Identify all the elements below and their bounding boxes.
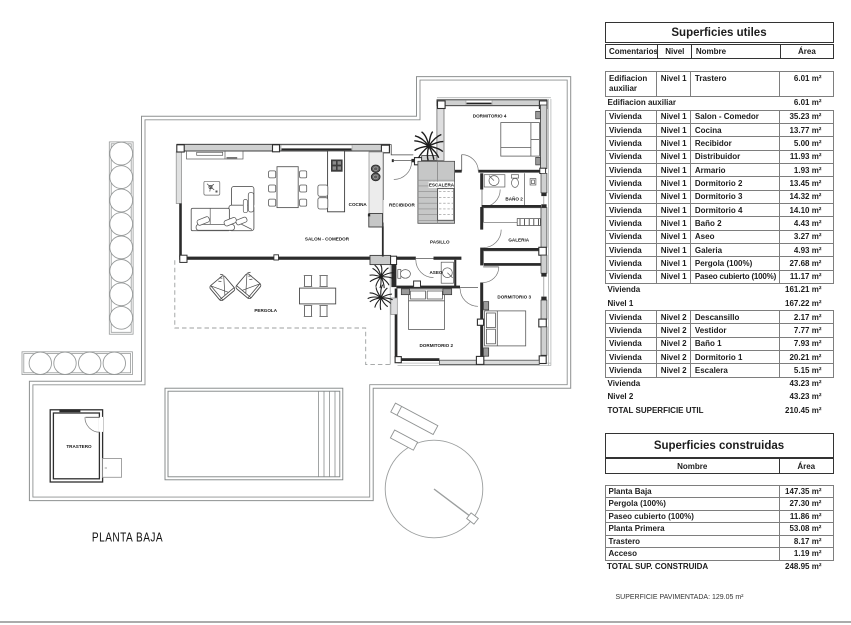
svg-text:SALON - COMEDOR: SALON - COMEDOR xyxy=(305,237,350,242)
svg-text:GALERIA: GALERIA xyxy=(508,237,529,242)
svg-text:BAÑO 2: BAÑO 2 xyxy=(505,195,523,201)
svg-text:PLANTA BAJA: PLANTA BAJA xyxy=(92,531,163,544)
svg-text:RECIBIDOR: RECIBIDOR xyxy=(389,203,415,208)
svg-text:PASILLO: PASILLO xyxy=(430,240,450,245)
svg-text:ASEO: ASEO xyxy=(429,270,442,275)
svg-text:ESCALERA: ESCALERA xyxy=(429,183,455,188)
svg-text:DORMITORIO 3: DORMITORIO 3 xyxy=(497,294,531,299)
svg-text:PERGOLA: PERGOLA xyxy=(254,308,277,313)
svg-text:COCINA: COCINA xyxy=(349,202,368,207)
svg-text:DORMITORIO 4: DORMITORIO 4 xyxy=(473,113,507,118)
svg-text:DORMITORIO 2: DORMITORIO 2 xyxy=(419,343,453,348)
svg-text:TRASTERO: TRASTERO xyxy=(66,444,92,449)
